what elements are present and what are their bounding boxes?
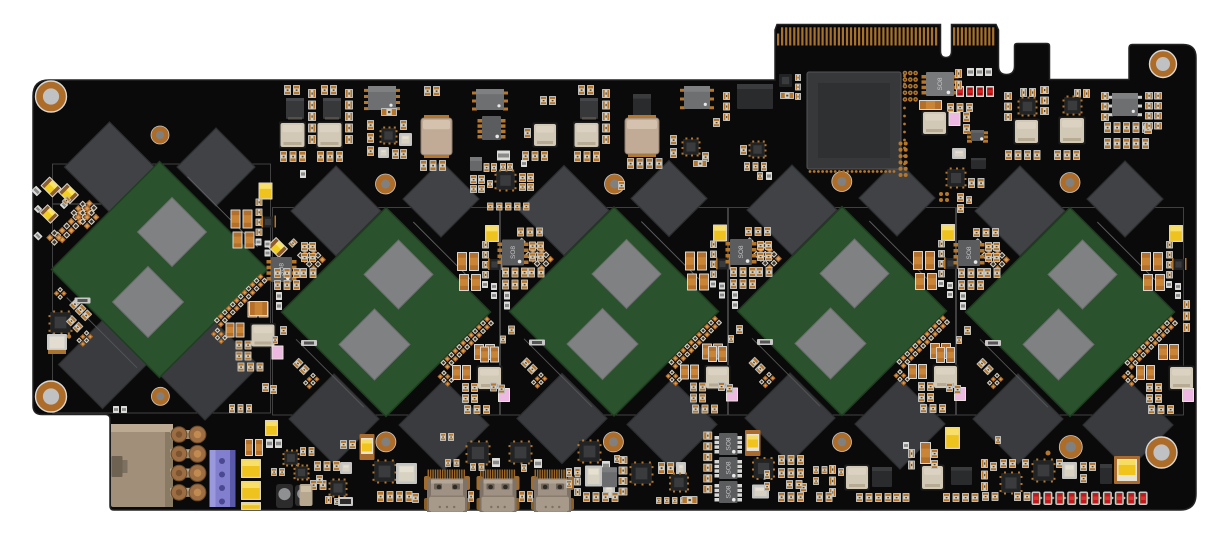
svg-text:SO8: SO8 bbox=[725, 461, 732, 474]
svg-text:SO8: SO8 bbox=[725, 485, 732, 498]
svg-text:SO8: SO8 bbox=[966, 246, 973, 259]
svg-text:SO8: SO8 bbox=[738, 245, 745, 258]
svg-text:SO8: SO8 bbox=[510, 246, 517, 259]
svg-text:SO8: SO8 bbox=[937, 77, 944, 90]
svg-text:SO8: SO8 bbox=[725, 437, 732, 450]
